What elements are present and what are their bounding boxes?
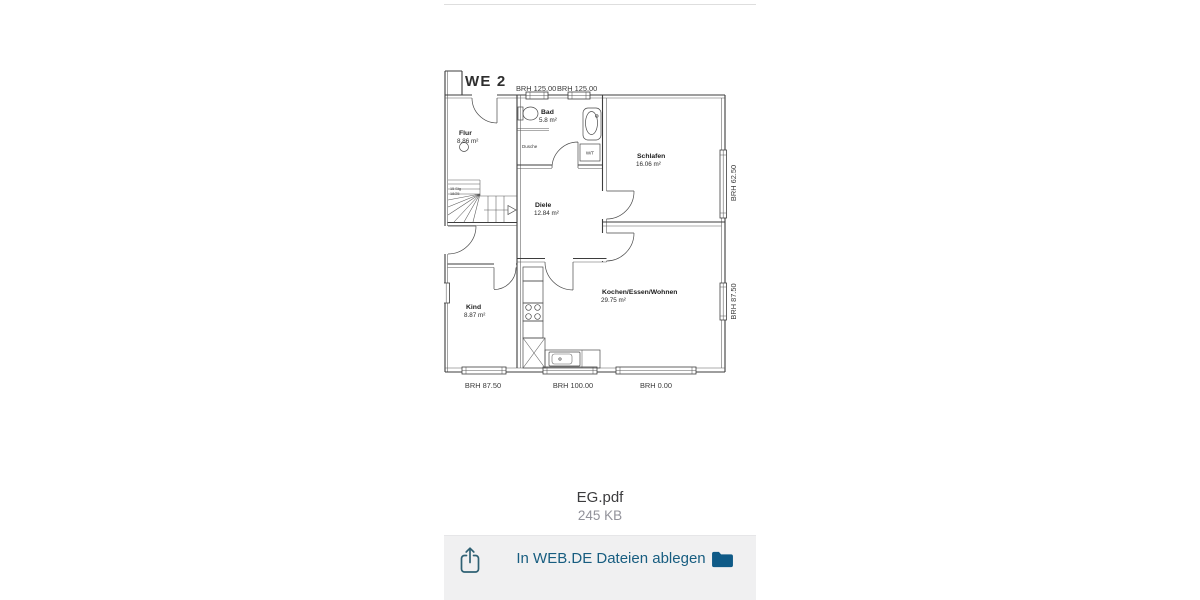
- room-flur-area: 8.86 m²: [457, 138, 478, 145]
- dim-bottom-2: BRH 100.00: [553, 381, 593, 390]
- room-kind-area: 8.87 m²: [464, 312, 485, 319]
- save-to-webde-label: In WEB.DE Dateien ablegen: [444, 550, 756, 567]
- attachment-preview-screen: WE 2 BRH 125.00 BRH 125.00 Flur 8.86 m² …: [444, 0, 756, 600]
- washer-label: W/T: [586, 151, 594, 156]
- floor-plan: WE 2 BRH 125.00 BRH 125.00 Flur 8.86 m² …: [444, 64, 756, 396]
- dim-bottom-3: BRH 0.00: [640, 381, 672, 390]
- dim-right-2: BRH 87.50: [729, 283, 738, 319]
- stair-steps-label: 15 Stg: [450, 187, 461, 191]
- dim-top-2: BRH 125.00: [557, 84, 597, 93]
- room-kochen-name: Kochen/Essen/Wohnen: [602, 289, 677, 296]
- room-diele-name: Diele: [535, 202, 551, 209]
- room-diele-area: 12.84 m²: [534, 210, 559, 217]
- top-divider: [444, 4, 756, 5]
- pdf-preview[interactable]: WE 2 BRH 125.00 BRH 125.00 Flur 8.86 m² …: [444, 64, 756, 396]
- dim-right-1: BRH 62.50: [729, 165, 738, 201]
- folder-icon: [711, 550, 734, 572]
- stair-ratio-label: 18/25: [450, 192, 460, 196]
- bathroom-fixtures: [460, 107, 602, 161]
- dim-top-1: BRH 125.00: [516, 84, 556, 93]
- save-to-webde-button[interactable]: In WEB.DE Dateien ablegen: [444, 536, 756, 586]
- room-schlafen-name: Schlafen: [637, 153, 665, 160]
- dim-bottom-1: BRH 87.50: [465, 381, 501, 390]
- kitchen-fixtures: [523, 267, 600, 368]
- plan-labels: WE 2 BRH 125.00 BRH 125.00 Flur 8.86 m² …: [450, 73, 738, 390]
- file-size: 245 KB: [444, 508, 756, 523]
- stair-direction-arrow: [508, 206, 516, 215]
- shower-label: Dusche: [522, 144, 538, 149]
- screenshot-stage: WE 2 BRH 125.00 BRH 125.00 Flur 8.86 m² …: [0, 0, 1200, 600]
- room-kochen-area: 29.75 m²: [601, 297, 626, 304]
- shower-screen: [517, 129, 549, 131]
- file-name: EG.pdf: [444, 489, 756, 506]
- room-schlafen-area: 16.06 m²: [636, 161, 661, 168]
- room-kind-name: Kind: [466, 304, 481, 311]
- bottom-toolbar: In WEB.DE Dateien ablegen: [444, 535, 756, 600]
- sink-counter: [545, 350, 600, 368]
- room-bad-area: 5.8 m²: [539, 117, 557, 124]
- toilet-icon: [523, 107, 538, 120]
- interior-walls: [448, 95, 726, 368]
- room-flur-name: Flur: [459, 130, 472, 137]
- unit-label: WE 2: [465, 73, 506, 90]
- room-bad-name: Bad: [541, 109, 554, 116]
- windows: [444, 92, 727, 374]
